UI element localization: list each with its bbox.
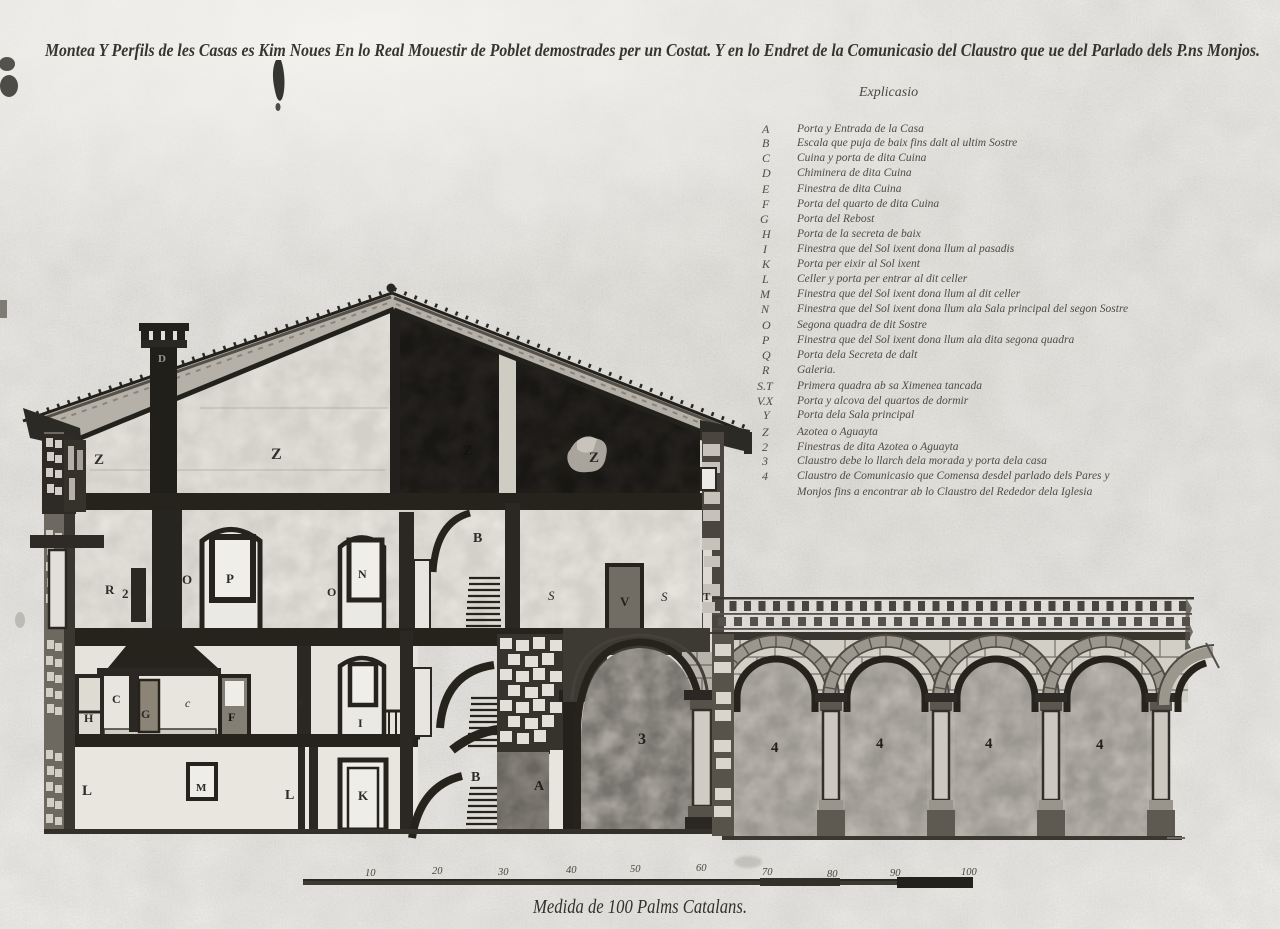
svg-text:Z: Z [463, 443, 473, 459]
svg-text:Finestras de dita Azotea o Agu: Finestras de dita Azotea o Aguayta [796, 441, 959, 453]
svg-text:B: B [473, 531, 482, 546]
svg-text:M: M [759, 287, 771, 301]
svg-text:Escala que puja de baix fins d: Escala que puja de baix fins dalt al ult… [796, 137, 1017, 149]
svg-text:V: V [620, 594, 630, 609]
svg-text:50: 50 [630, 864, 641, 875]
svg-text:N: N [760, 302, 770, 316]
svg-text:Z: Z [94, 452, 104, 468]
svg-text:C: C [112, 692, 121, 706]
svg-text:2: 2 [762, 440, 768, 454]
svg-text:Porta de la secreta de baix: Porta de la secreta de baix [796, 228, 922, 240]
svg-text:S.T: S.T [757, 379, 774, 393]
svg-text:Monjos fins a encontrar ab lo: Monjos fins a encontrar ab lo Claustro d… [796, 486, 1093, 498]
svg-text:L: L [761, 272, 769, 286]
svg-text:20: 20 [432, 866, 443, 877]
svg-text:Porta y alcova del quartos de: Porta y alcova del quartos de dormir [796, 395, 969, 407]
svg-text:60: 60 [696, 863, 707, 874]
svg-text:G: G [141, 707, 150, 721]
svg-text:F: F [228, 710, 235, 724]
svg-text:3: 3 [638, 731, 646, 748]
svg-text:L: L [285, 788, 294, 803]
svg-text:Chiminera de dita Cuina: Chiminera de dita Cuina [797, 167, 912, 179]
svg-text:Primera quadra ab sa Ximenea t: Primera quadra ab sa Ximenea tancada [796, 380, 982, 392]
svg-text:Azotea o Aguayta: Azotea o Aguayta [796, 426, 878, 438]
svg-text:N: N [358, 567, 367, 581]
svg-text:O: O [762, 318, 771, 332]
svg-text:4: 4 [1096, 737, 1104, 753]
svg-text:Explicasio: Explicasio [858, 85, 918, 100]
svg-text:M: M [196, 782, 207, 794]
svg-text:90: 90 [890, 868, 901, 879]
svg-text:4: 4 [876, 736, 884, 752]
svg-text:Claustro de Comunicasio que Co: Claustro de Comunicasio que Comensa desd… [797, 470, 1110, 482]
svg-text:c: c [185, 696, 191, 710]
svg-text:G: G [760, 212, 769, 226]
svg-text:Porta y Entrada de la Casa: Porta y Entrada de la Casa [796, 123, 924, 135]
svg-text:S: S [661, 589, 668, 604]
svg-text:Cuina y porta de dita Cuina: Cuina y porta de dita Cuina [797, 152, 927, 164]
svg-text:Porta dela Secreta de dalt: Porta dela Secreta de dalt [796, 349, 918, 361]
svg-text:30: 30 [497, 867, 509, 878]
svg-text:Finestra que del Sol ixent don: Finestra que del Sol ixent dona llum al … [796, 288, 1021, 300]
svg-text:Z: Z [271, 446, 282, 463]
svg-text:Montea Y Perfils de les Casas: Montea Y Perfils de les Casas es Kim Nou… [44, 40, 1260, 60]
svg-text:A: A [761, 122, 770, 136]
svg-text:P: P [226, 571, 234, 586]
svg-text:F: F [761, 197, 770, 211]
svg-text:O: O [182, 572, 192, 587]
svg-text:10: 10 [365, 868, 376, 879]
svg-text:Finestra de dita Cuina: Finestra de dita Cuina [796, 183, 902, 195]
svg-text:R: R [761, 363, 770, 377]
svg-text:B: B [471, 770, 480, 785]
svg-text:Celler y porta per entrar al d: Celler y porta per entrar al dit celler [797, 273, 968, 285]
svg-text:T: T [703, 591, 711, 603]
svg-text:V.X: V.X [757, 394, 774, 408]
svg-text:P: P [761, 333, 770, 347]
svg-text:4: 4 [985, 736, 993, 752]
svg-text:Galeria.: Galeria. [797, 364, 836, 376]
svg-text:O: O [327, 585, 336, 599]
svg-text:L: L [82, 783, 92, 799]
svg-text:40: 40 [566, 865, 577, 876]
svg-text:H: H [84, 711, 94, 725]
svg-text:S: S [548, 588, 555, 603]
svg-text:Porta del quarto de dita Cuina: Porta del quarto de dita Cuina [796, 198, 939, 210]
svg-text:Finestra que del Sol ixent don: Finestra que del Sol ixent dona llum ala… [796, 334, 1075, 346]
svg-text:D: D [158, 353, 166, 365]
svg-text:C: C [299, 696, 308, 710]
svg-text:K: K [761, 257, 771, 271]
svg-text:80: 80 [827, 869, 838, 880]
svg-text:2: 2 [122, 586, 129, 601]
svg-text:I: I [358, 716, 363, 730]
svg-text:4: 4 [762, 469, 768, 483]
svg-text:H: H [761, 227, 772, 241]
svg-text:Z: Z [762, 425, 769, 439]
svg-text:Segona quadra de dit Sostre: Segona quadra de dit Sostre [797, 319, 927, 331]
svg-text:Medida de 100 Palms Catalans.: Medida de 100 Palms Catalans. [532, 896, 747, 918]
svg-text:Claustro debe lo llarch dela m: Claustro debe lo llarch dela morada y po… [797, 455, 1047, 467]
svg-text:Finestra que del Sol ixent don: Finestra que del Sol ixent dona llum ala… [796, 303, 1128, 315]
svg-text:D: D [761, 166, 771, 180]
svg-text:Porta per eixir al Sol ixent: Porta per eixir al Sol ixent [796, 258, 921, 270]
svg-text:Q: Q [762, 348, 771, 362]
svg-text:C: C [762, 151, 771, 165]
svg-text:Finestra que del Sol ixent don: Finestra que del Sol ixent dona llum al … [796, 243, 1015, 255]
svg-text:A: A [534, 779, 545, 794]
svg-text:70: 70 [762, 867, 773, 878]
svg-text:B: B [762, 136, 770, 150]
svg-text:100: 100 [961, 867, 978, 878]
svg-text:4: 4 [771, 740, 779, 756]
svg-text:R: R [105, 582, 115, 597]
svg-text:E: E [761, 182, 770, 196]
svg-text:K: K [358, 788, 369, 803]
svg-text:Porta del Rebost: Porta del Rebost [796, 213, 875, 225]
svg-text:3: 3 [761, 454, 768, 468]
svg-text:Z: Z [589, 450, 599, 466]
svg-text:Porta dela Sala principal: Porta dela Sala principal [796, 409, 914, 421]
